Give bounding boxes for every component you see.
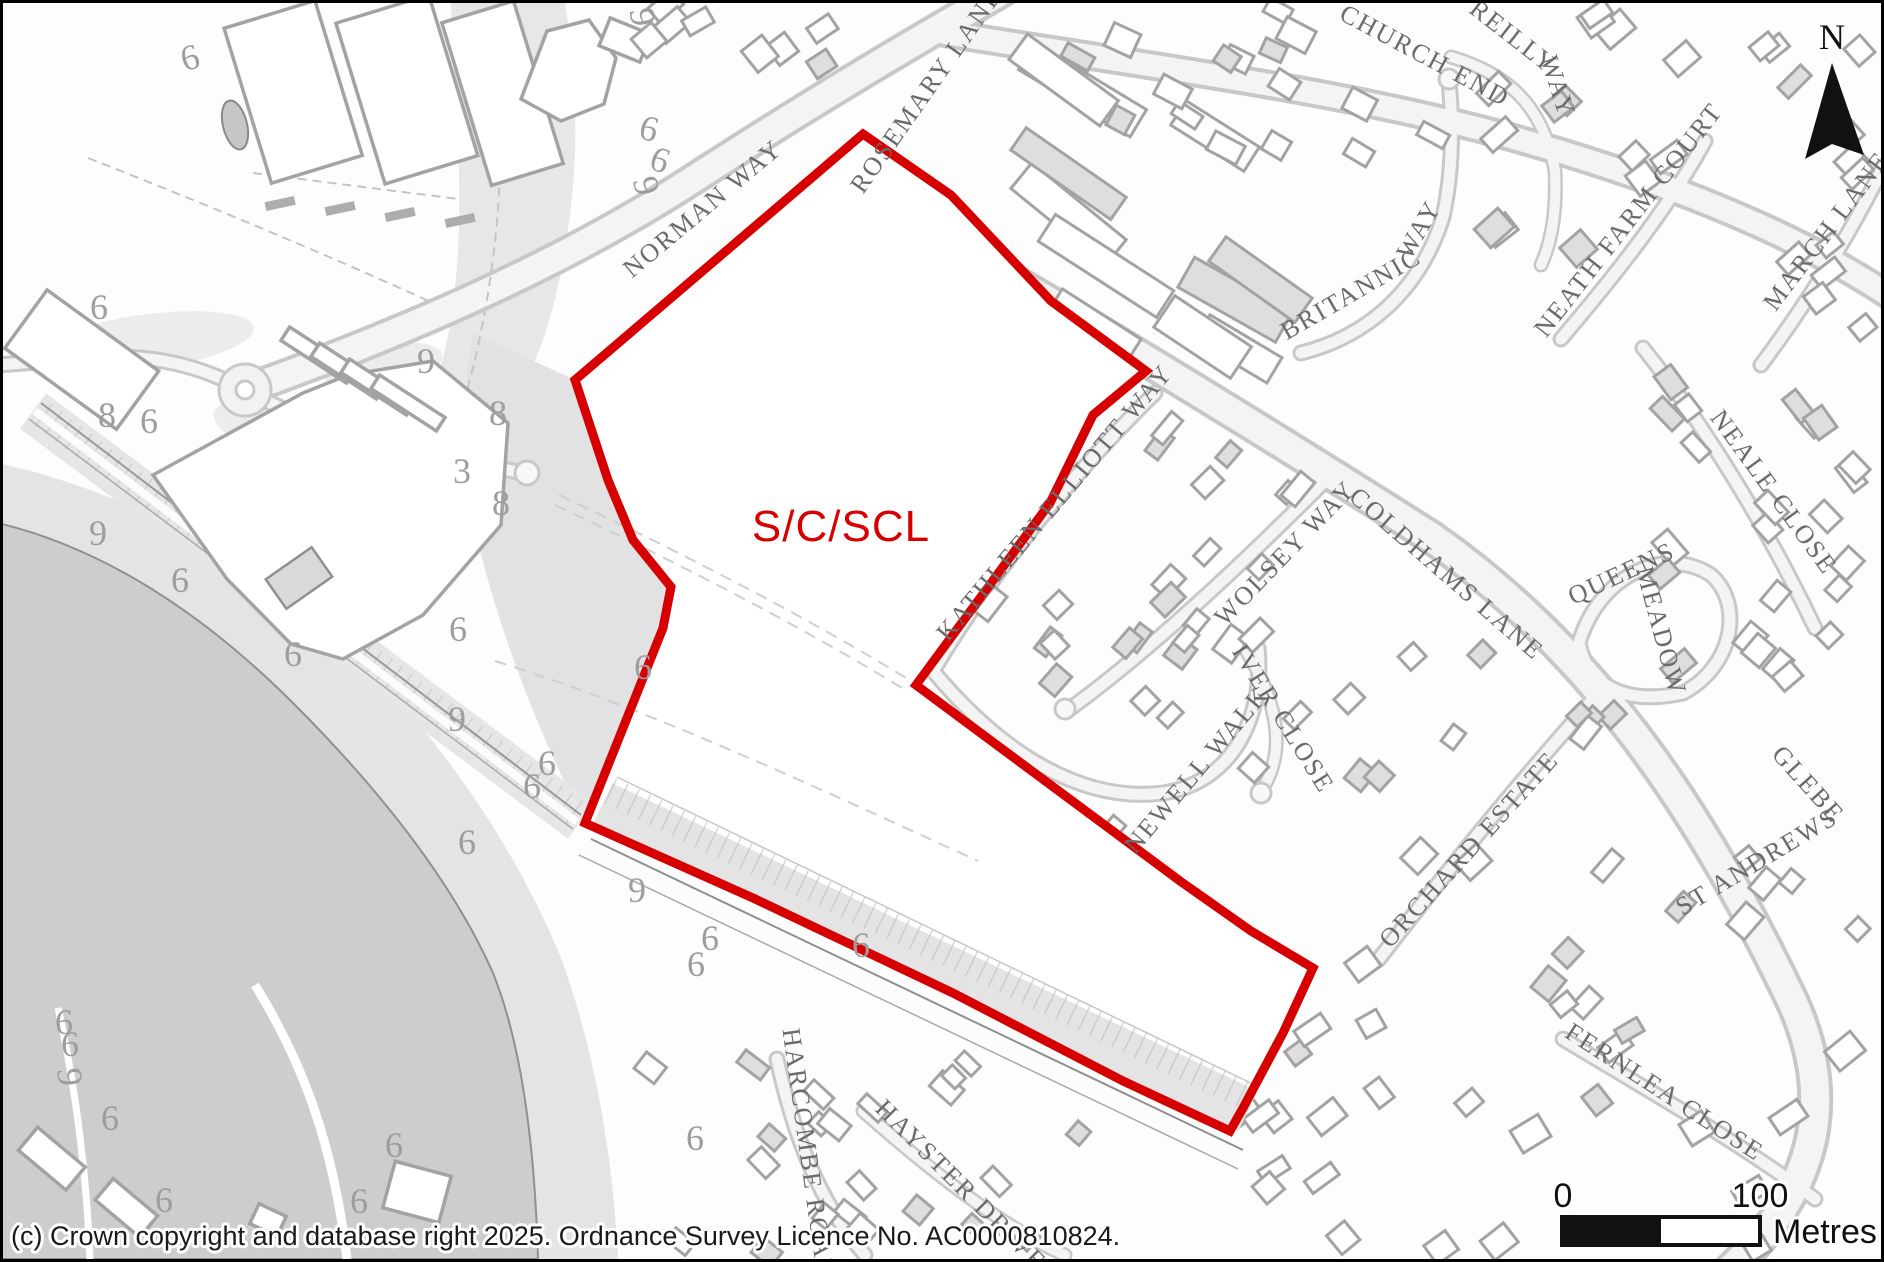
map-number: 6 bbox=[385, 1125, 403, 1165]
map-number: 8 bbox=[492, 483, 510, 523]
map-number: 9 bbox=[89, 513, 107, 553]
map-number: 3 bbox=[453, 451, 471, 491]
map-number: 8 bbox=[98, 395, 116, 435]
map-number: 6 bbox=[634, 647, 652, 687]
map-number: 6 bbox=[523, 766, 541, 806]
scale-unit-label: Metres bbox=[1773, 1213, 1877, 1251]
site-location-map: NORMAN WAYROSEMARY LANECHURCH ENDREILLYW… bbox=[3, 3, 1881, 1259]
site-reference-label: S/C/SCL bbox=[752, 502, 930, 551]
roundabout bbox=[219, 364, 271, 416]
map-number: 6 bbox=[458, 822, 476, 862]
map-number: 9 bbox=[628, 870, 646, 910]
map-number: 9 bbox=[448, 699, 466, 739]
map-number: 6 bbox=[155, 1180, 173, 1220]
map-number: 6 bbox=[61, 1024, 79, 1064]
north-letter: N bbox=[1819, 17, 1845, 57]
map-number: 6 bbox=[686, 1118, 704, 1158]
scale-bar-fill bbox=[1562, 1217, 1661, 1245]
map-number: 6 bbox=[449, 609, 467, 649]
map-number: 6 bbox=[90, 287, 108, 327]
map-number: 6 bbox=[171, 560, 189, 600]
copyright-text: (c) Crown copyright and database right 2… bbox=[11, 1221, 1120, 1251]
map-number: 8 bbox=[489, 393, 507, 433]
map-number: 6 bbox=[140, 401, 158, 441]
map-number: 6 bbox=[350, 1181, 368, 1221]
map-number: 9 bbox=[49, 1066, 90, 1087]
scale-zero-label: 0 bbox=[1554, 1177, 1573, 1215]
scale-hundred-label: 100 bbox=[1732, 1177, 1789, 1215]
map-number: 6 bbox=[284, 634, 302, 674]
map-number: 6 bbox=[687, 944, 705, 984]
map-number: 9 bbox=[417, 341, 435, 381]
map-number: 6 bbox=[101, 1098, 119, 1138]
map-number: 6 bbox=[852, 925, 870, 965]
map-viewport: NORMAN WAYROSEMARY LANECHURCH ENDREILLYW… bbox=[0, 0, 1884, 1262]
